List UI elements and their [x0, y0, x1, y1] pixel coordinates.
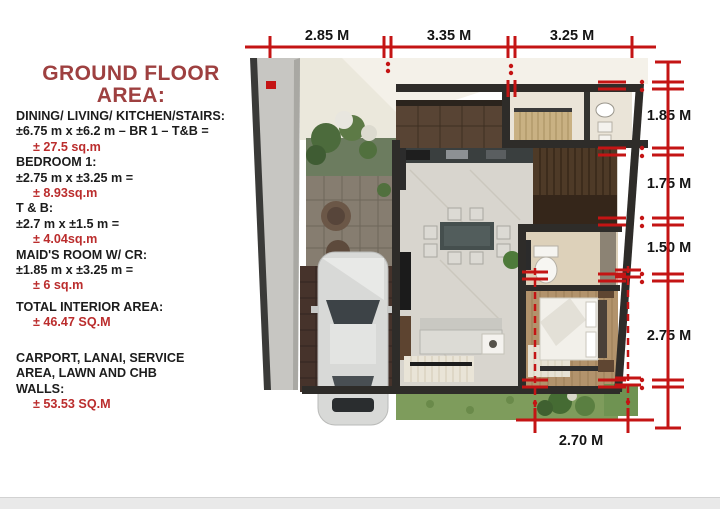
left-wall: [250, 58, 300, 390]
stairs: [533, 148, 617, 228]
floor-plan: 2.85 M 3.35 M 3.25 M 1.85 M 1.75 M 1.50 …: [0, 0, 720, 509]
maids-room: [508, 92, 632, 145]
bottom-bar: [0, 497, 720, 509]
car: [311, 252, 395, 425]
dim-label-top-1: 2.85 M: [305, 28, 349, 44]
washbasin-icon: [596, 103, 614, 117]
car-windshield: [326, 300, 380, 324]
dim-label-top-2: 3.35 M: [427, 28, 471, 44]
bedroom: [524, 286, 618, 392]
nightstand-icon: [598, 360, 614, 372]
screenshot-root: GROUND FLOOR AREA: DINING/ LIVING/ KITCH…: [0, 0, 720, 509]
dim-label-top-3: 3.25 M: [550, 28, 594, 44]
toilet-icon: [534, 246, 558, 257]
dim-label-bottom-1: 2.70 M: [559, 433, 603, 449]
